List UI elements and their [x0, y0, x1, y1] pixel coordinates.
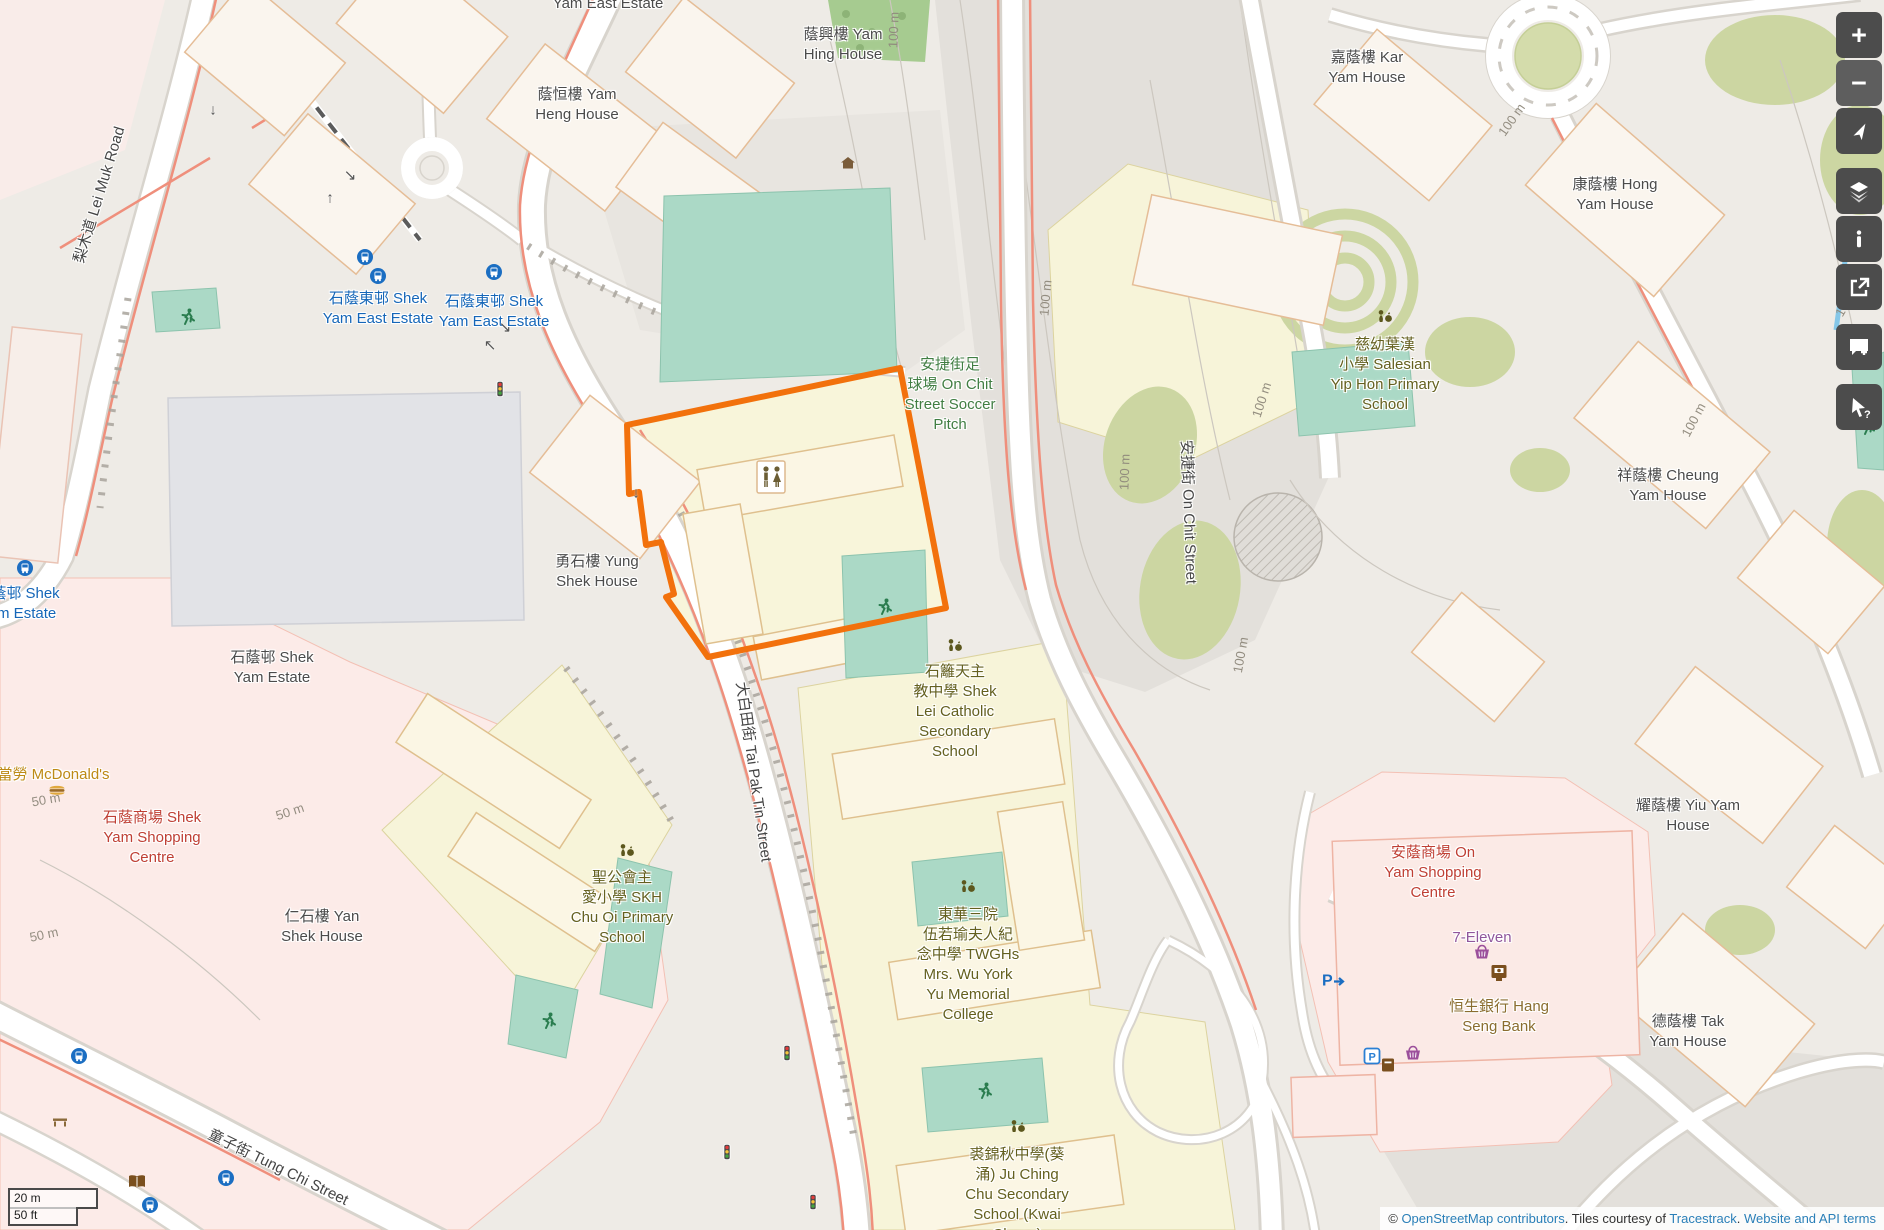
terms-link[interactable]: Website and API terms — [1744, 1211, 1876, 1226]
copyright-symbol: © — [1388, 1211, 1398, 1226]
tracestrack-link[interactable]: Tracestrack — [1669, 1211, 1736, 1226]
osm-contributors-link[interactable]: OpenStreetMap contributors — [1401, 1211, 1564, 1226]
share-icon[interactable] — [1836, 264, 1882, 310]
zoom-out-button[interactable]: − — [1836, 60, 1882, 106]
query-features-icon[interactable]: ? — [1836, 384, 1882, 430]
map-controls: + − ? — [1836, 12, 1882, 444]
attribution-dot2: . — [1737, 1211, 1741, 1226]
scale-bar: 20 m 50 ft — [8, 1188, 98, 1226]
zoom-in-button[interactable]: + — [1836, 12, 1882, 58]
attribution-bar: © OpenStreetMap contributors. Tiles cour… — [1380, 1207, 1884, 1230]
add-note-icon[interactable] — [1836, 324, 1882, 370]
scale-metric: 20 m — [8, 1188, 98, 1209]
locate-icon[interactable] — [1836, 108, 1882, 154]
map-key-icon[interactable] — [1836, 216, 1882, 262]
map-canvas — [0, 0, 1884, 1230]
svg-text:?: ? — [1864, 409, 1871, 419]
layers-icon[interactable] — [1836, 168, 1882, 214]
scale-imperial: 50 ft — [8, 1207, 78, 1226]
map-viewport[interactable]: Yam East Estate蔭興樓 YamHing House蔭恒樓 YamH… — [0, 0, 1884, 1230]
attribution-dot: . — [1565, 1211, 1569, 1226]
tiles-notice: Tiles courtesy of — [1572, 1211, 1666, 1226]
